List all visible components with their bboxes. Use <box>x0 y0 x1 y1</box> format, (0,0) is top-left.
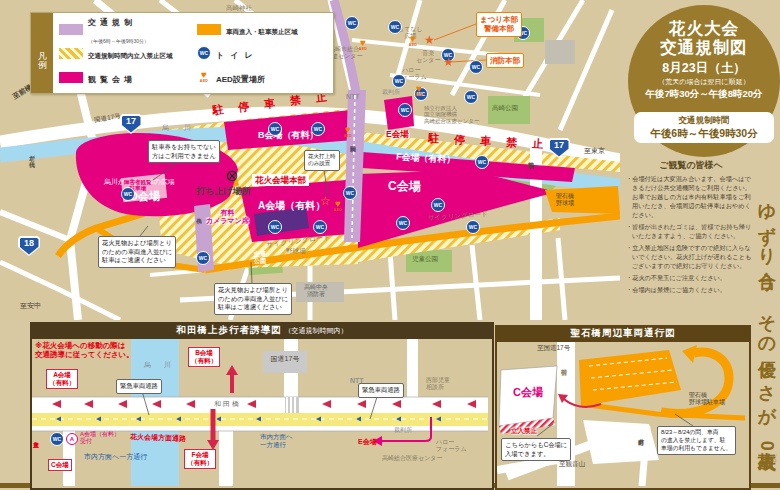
wada-venue-e-label: E会場 <box>358 438 377 446</box>
launch-site-icon: ⊗ <box>225 168 238 184</box>
legend: 凡例 交通規制 （午後6時～午後9時30分） 交通規制時間内立入禁止区域 観覧会… <box>30 12 334 94</box>
notice-item: ・花火の不発玉にご注意ください。 <box>626 274 756 283</box>
fire-station-label: 高崎中央 消防署 <box>304 284 328 298</box>
legend-item-no-entry: 車両進入・駐車禁止区域 <box>197 19 327 39</box>
legend-item-venue: 観覧会場 <box>59 67 189 87</box>
entry-callout: こちらからもC会場に 入場できます。 <box>501 438 571 461</box>
wada-hello-forum-label: ハロー フォーラム <box>436 439 467 453</box>
wada-panel-title: 和田橋上歩行者誘導図 （交通規制時間内） <box>30 322 494 339</box>
hijiri-bridge-panel: 聖石橋周辺車両通行図 <box>495 325 751 490</box>
notice-item: ・会場内は禁煙にご協力ください。 <box>626 286 756 295</box>
fire-hq-callout: 消防本部 <box>486 53 524 68</box>
oneway-label-2: 市内方面へ 一方通行 <box>260 433 293 448</box>
hijiri-venue-c-label: C会場 <box>513 386 543 399</box>
rain-note: （荒天の場合は翌日に順延） <box>618 77 780 87</box>
hijiri-panel-body: 至国道17号 聖石橋 C会場 立入禁止 こちらからもC会場に 入場できます。 聖… <box>497 342 749 488</box>
wada-venue-a-tag: A会場 （有料） <box>46 369 78 389</box>
safety-slogan: ゆずり合う その優しさが 事故0へ <box>755 190 779 486</box>
venue-c-label: C会場 <box>388 179 421 193</box>
no-entry-callout-2: 花火見物および場所とり のための車両進入並びに 駐車はご遠慮ください <box>214 283 292 315</box>
to-annaka-label: 至安中 <box>20 302 41 310</box>
orange-swatch <box>197 24 221 35</box>
child-office-label: 西部児童 相談所 <box>426 377 450 391</box>
music-center-label: 音楽 センター <box>416 50 440 64</box>
toilet-icon: WC <box>268 122 282 136</box>
matsuri-hq-callout: まつり本部 警備本部 <box>476 12 522 37</box>
reception-a-marker: A <box>66 433 78 445</box>
hospital-label: 独立行政法人 国立病院機構 高崎総合医療センター <box>424 105 479 124</box>
poster-title-line2: 交通規制図 <box>618 37 780 59</box>
wada-river-label: 烏 川 <box>144 361 174 369</box>
toilet-icon: WC <box>396 216 410 230</box>
aed-icon: ♥AED <box>331 199 345 213</box>
legend-item-keepout: 交通規制時間内立入禁止区域 <box>59 43 189 63</box>
magenta-swatch <box>59 72 83 83</box>
route-18-shield-icon: 18 <box>18 236 40 256</box>
toilet-icon: WC <box>268 220 282 234</box>
route-17-shield-icon: 17 <box>120 114 142 134</box>
hijiri-map-base <box>497 342 745 486</box>
toilet-icon: WC <box>311 122 325 136</box>
legend-item-toilet: WC トイレ <box>197 43 327 63</box>
toilet-icon: WC <box>469 60 483 74</box>
launch-site-label: 打ち上げ場所 <box>196 186 250 197</box>
wada-map-base <box>32 339 488 486</box>
wada-panel-body: ※花火会場への移動の際は 交通誘導に従ってください。 烏 川 和田橋 A会場 （… <box>32 339 492 488</box>
wada-court-label: 裁判所 <box>394 427 412 434</box>
regulation-time-label: 交通規制時間 <box>634 115 774 127</box>
toilet-icon: WC <box>464 90 478 104</box>
toilet-icon: WC <box>398 103 412 117</box>
court-label: 裁判所 <box>382 89 400 96</box>
toilet-icon: WC <box>475 155 489 169</box>
jido-park-label: 児童公園 <box>412 255 438 263</box>
hijiri-panel-title: 聖石橋周辺車両通行図 <box>495 325 751 342</box>
ballfield-label: 野球場 <box>286 247 306 255</box>
wada-venue-f-tag: F会場 （有料） <box>184 449 216 469</box>
matsuri-hq-star-icon: ★ <box>424 34 435 46</box>
ballpark-parking-label: 聖石橋 野球場駐車場 <box>689 392 725 406</box>
regulation-time-value: 午後6時～午後9時30分 <box>634 127 774 141</box>
wada-route17-box: 国道17号 <box>263 351 307 373</box>
to-kannon-label: 至観音山 <box>559 460 585 468</box>
karasu-river-label: 烏 川 <box>162 124 195 132</box>
kotsu-park-label: 交通 公園 <box>254 251 266 265</box>
cameraman-label: 有料 カメラマン席 <box>206 209 249 226</box>
toilet-icon: WC <box>121 187 135 201</box>
launch-only-callout: 花火打上時 のみ設置 <box>304 150 340 171</box>
to-route17-label: 至国道17号 <box>537 344 570 352</box>
traffic-regulation-poster: 至前橋 高崎神社 中央小 君が代橋 国道17号 烏 川 駐 停 車 禁 止 駐 … <box>0 0 780 490</box>
aed-icon: ♥AED <box>197 70 211 84</box>
fire-hq-star-icon: ★ <box>443 56 454 68</box>
toilet-icon: WC <box>388 20 402 34</box>
parking-ticket-callout: 駐車券をお持ちでない 方はご利用できません <box>148 140 220 163</box>
toilet-icon: WC <box>431 198 445 212</box>
venue-e-label: E会場 <box>386 129 409 139</box>
regulation-time-box: 交通規制時間 午後6時～午後9時30分 <box>634 112 774 143</box>
aid-station-star-icon: ☆ <box>320 195 331 207</box>
toilet-icon: WC <box>466 220 480 234</box>
notice-item: ・皆様が出されたゴミは、皆様でお持ち帰りいただきますよう、ご協力ください。 <box>626 223 756 241</box>
wada-venue-c-tag: C会場 <box>48 459 72 471</box>
takasaki-park-label: 高崎公園 <box>492 104 518 112</box>
toilet-icon: WC <box>343 186 357 200</box>
no-entry-callout-1: 花火見物および場所とり のための車両進入並びに 駐車はご遠慮ください <box>98 236 176 268</box>
visitor-notices: ・会場付近は大変混み合います。会場へはできるだけ公共交通機関をご利用ください。お… <box>626 175 756 298</box>
venue-a-label: A会場（有料） <box>258 200 325 212</box>
hijiri-ballpark-label: 聖石橋 野球場 <box>556 193 574 207</box>
toilet-icon: WC <box>313 220 327 234</box>
wada-bridge-panel: 和田橋上歩行者誘導図 （交通規制時間内） <box>30 322 494 490</box>
fireworks-hq-label: 花火会場本部 <box>252 174 309 186</box>
emergency-route-callout-2: 緊急車両通路 <box>358 383 404 398</box>
oneway-label-1: 市内方面へ一方通行 <box>84 453 147 461</box>
closed-callout: 8/23～8/24の間、車両 の進入を禁止します。駐 車場の利用もできません。 <box>657 426 736 455</box>
hijiri-keepout-label: 立入禁止 <box>511 427 537 435</box>
legend-item-regulation: 交通規制 （午後6時～午後9時30分） <box>59 19 189 39</box>
emergency-route-callout-1: 緊急車両通路 <box>116 379 162 394</box>
notice-item: ・会場付近は大変混み合います。会場へはできるだけ公共交通機関をご利用ください。お… <box>626 175 756 220</box>
purple-swatch <box>59 24 83 35</box>
aed-icon: ♥AED <box>356 38 370 52</box>
toilet-icon: WC <box>196 251 210 265</box>
takasaki-shrine-label: 高崎神社 <box>226 4 252 12</box>
event-date: 8月23日（土） <box>618 60 780 77</box>
aed-icon: ♥AED <box>412 84 426 98</box>
route-17-shield-icon: 17 <box>548 138 570 158</box>
to-tokyo-label: 至東京 <box>584 147 605 155</box>
aed-icon: ♥AED <box>341 125 355 139</box>
notices-title: ご観覧の皆様へ <box>628 160 754 171</box>
wada-reception-label: A会場（有料） 受付 <box>80 431 120 445</box>
toilet-icon: WC <box>392 74 406 88</box>
wada-note: ※花火会場への移動の際は 交通誘導に従ってください。 <box>35 342 134 360</box>
notice-item: ・立入禁止地区は危険ですので絶対に入らないでください。花火打上げが遅れることもご… <box>626 244 756 271</box>
slogan-ruby: ゼロ <box>772 451 777 461</box>
wada-bridge-name-label: 和田橋 <box>214 400 241 408</box>
venue-b-label: B会場（有料） <box>258 130 319 141</box>
wada-venue-b-tag: B会場 （有料） <box>188 347 220 367</box>
event-time: 午後7時30分～午後8時20分 <box>618 88 780 101</box>
aed-icon: ♥AED <box>406 34 420 48</box>
toilet-icon: WC <box>345 16 359 30</box>
toilet-icon: WC <box>50 432 64 446</box>
hatch-swatch <box>59 48 83 59</box>
legend-item-aed: ♥AED AED設置場所 <box>197 67 327 87</box>
legend-title: 凡例 <box>31 13 53 93</box>
ntt-label: NTT <box>346 93 360 101</box>
kimigayo-bridge-label: 君が代橋 <box>28 150 35 157</box>
toilet-icon: WC <box>197 46 211 60</box>
wada-medical-label: 高崎総合医療センター <box>382 455 442 462</box>
